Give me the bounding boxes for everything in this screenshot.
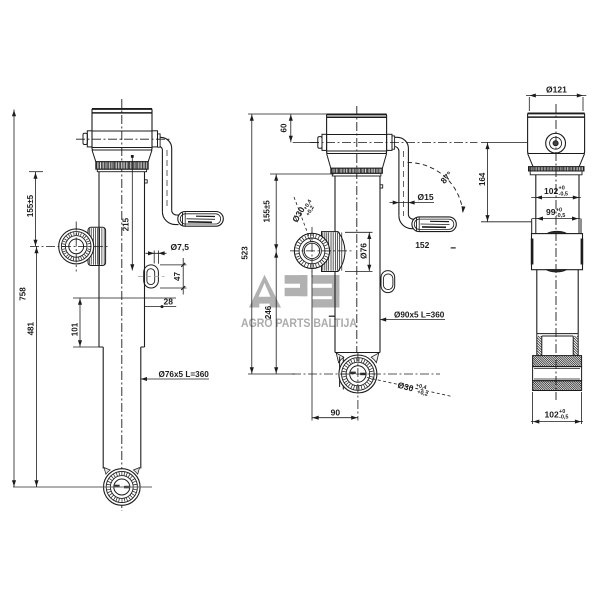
svg-text:758: 758 — [19, 287, 28, 301]
svg-text:Ø76x5 L=360: Ø76x5 L=360 — [159, 370, 210, 379]
svg-text:246: 246 — [264, 305, 273, 319]
svg-text:-0,5: -0,5 — [559, 191, 568, 197]
svg-text:47: 47 — [173, 272, 182, 281]
svg-text:Ø90x5 L=360: Ø90x5 L=360 — [394, 310, 445, 319]
svg-text:28: 28 — [164, 297, 174, 307]
svg-text:102: 102 — [545, 409, 559, 419]
svg-text:AGRO PARTS BALTIJA: AGRO PARTS BALTIJA — [241, 318, 357, 330]
svg-text:481: 481 — [27, 321, 36, 335]
svg-text:152: 152 — [415, 240, 429, 250]
svg-text:Ø76: Ø76 — [359, 243, 369, 259]
svg-text:-0,5: -0,5 — [559, 415, 568, 421]
svg-text:155±5: 155±5 — [263, 200, 272, 223]
svg-text:164: 164 — [478, 172, 487, 186]
svg-text:90: 90 — [331, 407, 341, 417]
svg-text:102: 102 — [544, 186, 558, 196]
svg-text:523: 523 — [241, 246, 250, 260]
svg-text:-0,5: -0,5 — [556, 213, 565, 219]
svg-text:Ø15: Ø15 — [418, 192, 434, 202]
svg-text:Ø7,5: Ø7,5 — [171, 242, 190, 252]
svg-text:Ø121: Ø121 — [546, 85, 567, 95]
svg-text:99: 99 — [546, 207, 556, 217]
svg-text:101: 101 — [71, 322, 80, 336]
svg-text:60: 60 — [279, 123, 288, 132]
svg-text:215: 215 — [122, 217, 131, 231]
svg-text:155±5: 155±5 — [26, 194, 35, 217]
